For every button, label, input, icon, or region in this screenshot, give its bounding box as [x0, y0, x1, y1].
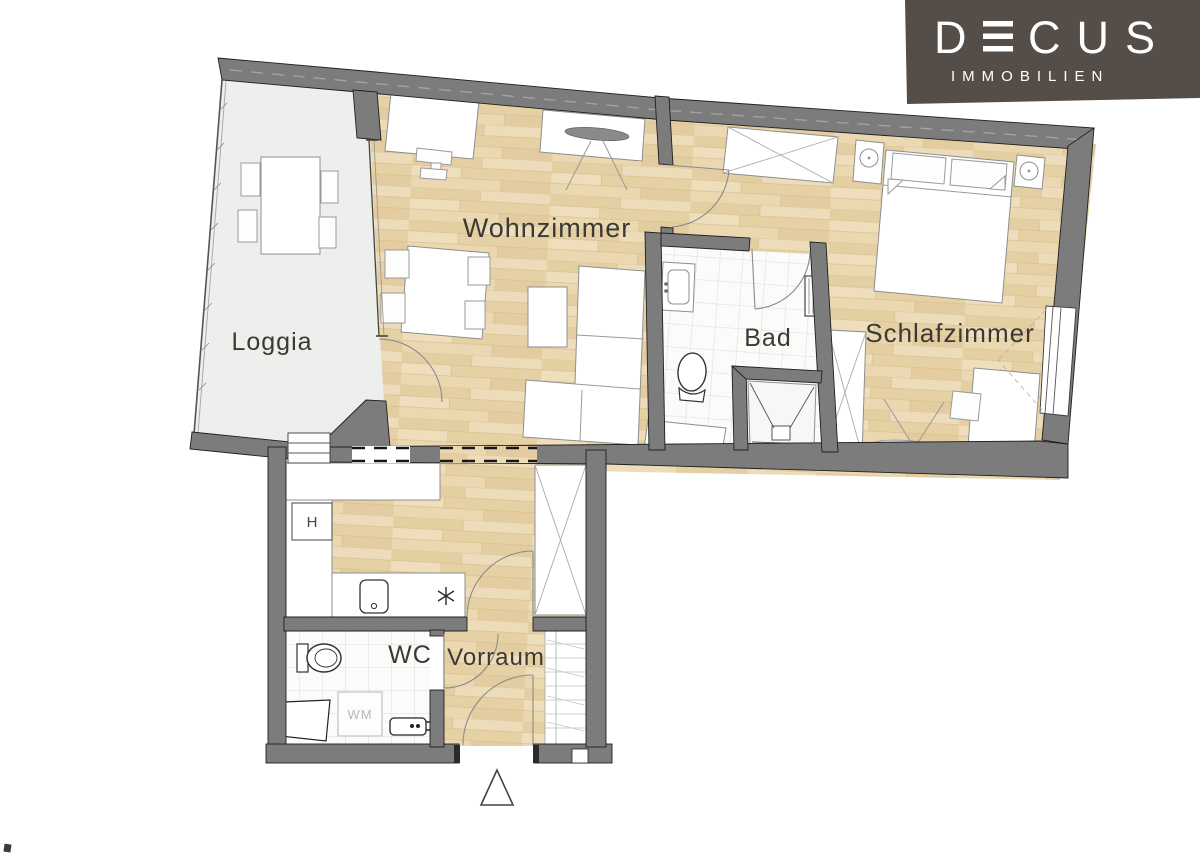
label-wohnzimmer: Wohnzimmer	[463, 213, 632, 243]
dining-chair	[385, 250, 409, 278]
kitchen-appliance-label: H	[307, 514, 318, 531]
window-kitchen-loggia	[288, 433, 330, 463]
entrance-arrow	[481, 770, 513, 805]
toilet	[677, 352, 708, 402]
brand-logo: D CUS IMMOBILIEN	[905, 0, 1200, 104]
label-bad: Bad	[744, 324, 791, 352]
label-schlafzimmer: Schlafzimmer	[865, 318, 1034, 348]
lamp-dot	[868, 157, 871, 160]
wall-bad-left	[645, 232, 665, 450]
label-vorraum: Vorraum	[447, 644, 545, 671]
desk	[385, 93, 479, 159]
wc-toilet	[297, 644, 341, 672]
logo-letter-e-bars	[983, 21, 1013, 52]
loggia-chair	[241, 163, 260, 196]
bedroom-chair	[950, 391, 981, 421]
page-corner-mark	[3, 844, 11, 853]
keyboard	[420, 168, 447, 180]
washing-machine-label: WM	[347, 707, 372, 722]
wall-annex-left	[268, 447, 286, 747]
floor-plan-page: H WM	[0, 0, 1200, 853]
logo-text-cus: CUS	[1028, 12, 1171, 63]
label-wc: WC	[388, 641, 432, 669]
nightstand	[853, 140, 884, 184]
kitchen-sink	[360, 580, 388, 613]
wall-stub-loggia-top	[353, 90, 381, 140]
shower	[748, 381, 816, 447]
wall-kitchen-wc-left	[284, 617, 467, 631]
dining-chair	[465, 301, 485, 329]
lamp-dot	[1028, 170, 1031, 173]
wall-kitchen-wc-right	[533, 617, 586, 631]
coffee-table	[528, 287, 567, 347]
logo-text-d: D	[934, 12, 983, 63]
loggia-chair	[319, 217, 336, 248]
wc-cabinet	[280, 700, 330, 741]
bathroom-sink	[661, 262, 695, 312]
counter-top-strip	[286, 463, 440, 500]
dining-chair	[468, 257, 490, 285]
logo-subtitle: IMMOBILIEN	[951, 68, 1109, 85]
dining-chair	[381, 293, 405, 323]
wall-annex-bottom-notch	[572, 749, 588, 763]
loggia-table	[261, 157, 320, 254]
entrance-jamb	[454, 745, 460, 763]
loggia-chair	[321, 171, 338, 203]
entrance-jamb	[533, 745, 539, 763]
label-loggia: Loggia	[231, 328, 312, 356]
wall-wc-vorraum-top	[430, 630, 444, 636]
floor-plan: H WM	[0, 0, 1200, 853]
vorraum-closet	[545, 630, 586, 746]
wall-wc-vorraum-bottom	[430, 690, 444, 747]
wall-annex-right	[586, 450, 606, 747]
loggia-chair	[238, 210, 257, 242]
